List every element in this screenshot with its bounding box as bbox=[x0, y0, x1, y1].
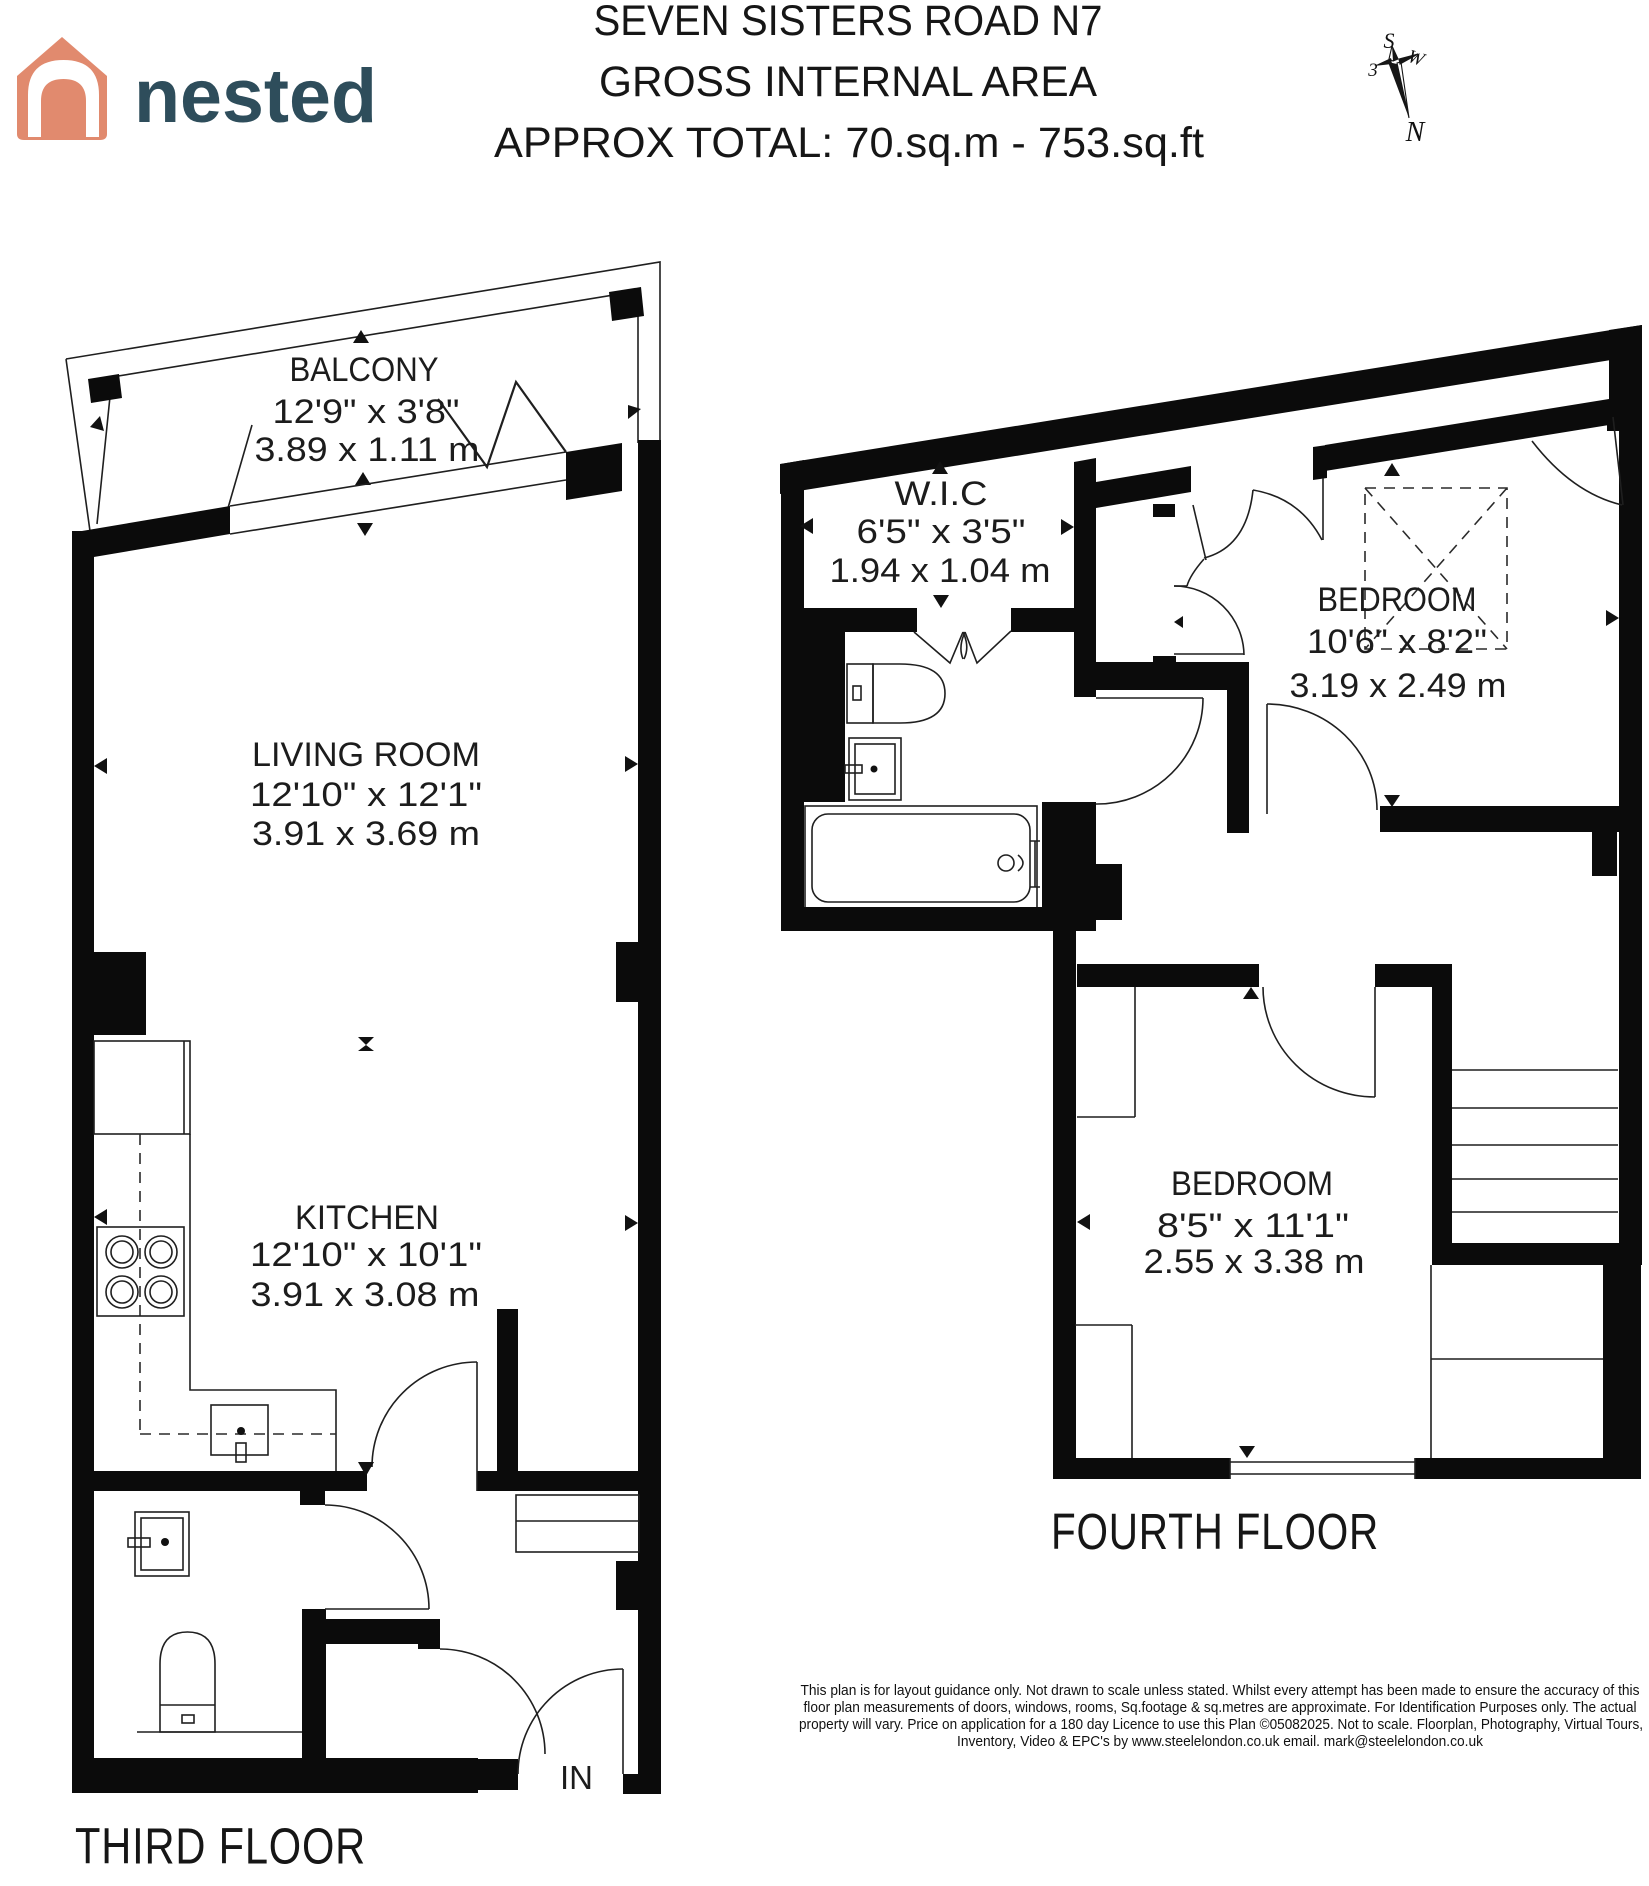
svg-text:floor plan measurements of doo: floor plan measurements of doors, window… bbox=[804, 1699, 1637, 1716]
svg-text:FOURTH FLOOR: FOURTH FLOOR bbox=[1051, 1503, 1379, 1560]
svg-text:3.19 x 2.49 m: 3.19 x 2.49 m bbox=[1290, 667, 1507, 705]
svg-text:W.I.C: W.I.C bbox=[895, 475, 988, 513]
svg-text:KITCHEN: KITCHEN bbox=[295, 1199, 439, 1237]
svg-text:SEVEN SISTERS ROAD N7: SEVEN SISTERS ROAD N7 bbox=[594, 0, 1103, 45]
svg-text:BALCONY: BALCONY bbox=[290, 351, 439, 389]
svg-text:12'9" x 3'8": 12'9" x 3'8" bbox=[273, 393, 460, 431]
svg-text:S: S bbox=[1384, 28, 1395, 53]
svg-text:12'10" x 10'1": 12'10" x 10'1" bbox=[250, 1236, 482, 1274]
svg-text:LIVING ROOM: LIVING ROOM bbox=[252, 736, 480, 774]
svg-text:3: 3 bbox=[1367, 60, 1378, 81]
svg-text:IN: IN bbox=[560, 1759, 593, 1796]
svg-text:GROSS INTERNAL AREA: GROSS INTERNAL AREA bbox=[599, 58, 1097, 106]
svg-text:This plan is for layout guidan: This plan is for layout guidance only. N… bbox=[801, 1682, 1640, 1699]
svg-text:nested: nested bbox=[134, 54, 377, 139]
svg-text:THIRD FLOOR: THIRD FLOOR bbox=[75, 1818, 366, 1875]
svg-text:BEDROOM: BEDROOM bbox=[1318, 581, 1477, 619]
svg-text:10'6" x 8'2": 10'6" x 8'2" bbox=[1307, 623, 1487, 661]
svg-text:BEDROOM: BEDROOM bbox=[1171, 1165, 1333, 1203]
svg-text:8'5" x 11'1": 8'5" x 11'1" bbox=[1157, 1207, 1349, 1245]
svg-text:12'10" x 12'1": 12'10" x 12'1" bbox=[250, 776, 482, 814]
svg-text:2.55 x 3.38 m: 2.55 x 3.38 m bbox=[1144, 1243, 1365, 1281]
svg-text:3.89 x 1.11 m: 3.89 x 1.11 m bbox=[255, 431, 480, 469]
svg-text:APPROX TOTAL: 70.sq.m - 753.sq: APPROX TOTAL: 70.sq.m - 753.sq.ft bbox=[494, 119, 1204, 167]
svg-text:Inventory, Video & EPC's by ww: Inventory, Video & EPC's by www.steelelo… bbox=[957, 1733, 1483, 1750]
svg-text:3.91 x 3.08 m: 3.91 x 3.08 m bbox=[251, 1276, 480, 1314]
svg-text:6'5" x 3'5": 6'5" x 3'5" bbox=[857, 513, 1026, 551]
svg-text:N: N bbox=[1405, 117, 1426, 148]
svg-text:1.94 x 1.04 m: 1.94 x 1.04 m bbox=[830, 552, 1051, 590]
svg-text:property will vary. Price on a: property will vary. Price on application… bbox=[799, 1716, 1643, 1733]
svg-text:3.91 x 3.69 m: 3.91 x 3.69 m bbox=[252, 815, 480, 853]
